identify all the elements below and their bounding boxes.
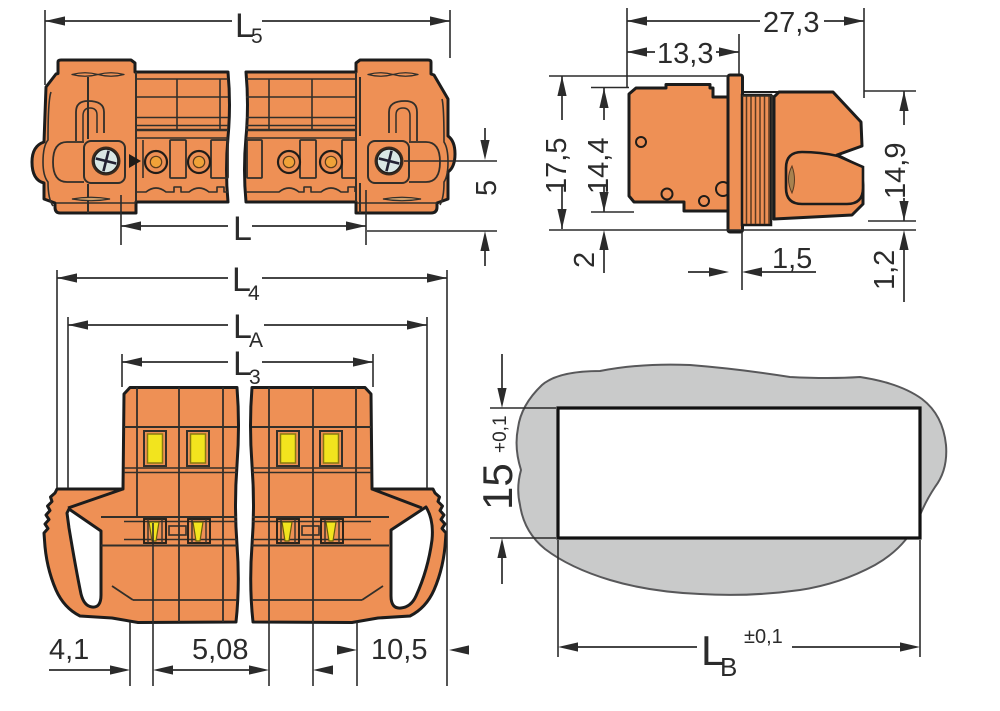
svg-text:L: L [233,210,252,248]
svg-text:5: 5 [251,25,263,48]
svg-text:14,9: 14,9 [880,143,912,199]
svg-text:10,5: 10,5 [371,634,427,666]
svg-text:3: 3 [249,366,261,389]
svg-text:4: 4 [248,282,260,305]
svg-text:27,3: 27,3 [763,7,819,39]
svg-text:5: 5 [471,180,503,196]
svg-text:+0,1: +0,1 [490,415,511,453]
svg-text:14,4: 14,4 [583,138,615,194]
svg-text:1,5: 1,5 [772,243,812,275]
svg-text:±0,1: ±0,1 [744,626,783,648]
svg-text:2: 2 [569,252,601,268]
svg-text:15: 15 [474,463,521,510]
svg-text:4,1: 4,1 [49,634,89,666]
svg-text:5,08: 5,08 [192,634,248,666]
svg-text:13,3: 13,3 [657,38,713,70]
svg-text:17,5: 17,5 [541,138,573,194]
svg-text:1,2: 1,2 [869,250,901,290]
svg-text:B: B [720,652,737,682]
